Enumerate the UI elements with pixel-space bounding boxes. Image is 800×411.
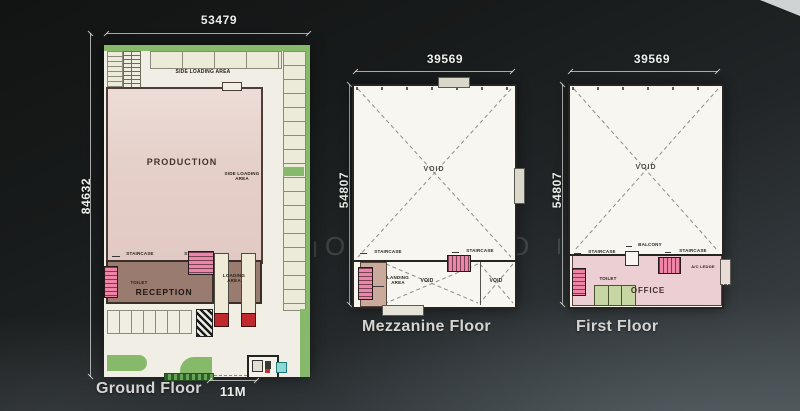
staircase-left-label: STAIRCASE	[118, 251, 162, 256]
parking-row-bottom	[107, 310, 192, 334]
staircase-left-label: STAIRCASE	[580, 249, 624, 254]
side-loading-area-right-label: SIDE LOADING AREA	[224, 171, 260, 182]
office-label: OFFICE	[626, 286, 670, 296]
mezz-width-dim-text: 39569	[395, 52, 495, 66]
first-floor-title: First Floor	[576, 318, 658, 336]
staircase-left-block	[572, 268, 586, 296]
staircase-left-label: STAIRCASE	[366, 249, 410, 254]
leader-line	[372, 286, 384, 287]
staircase-right-block	[188, 251, 214, 275]
first-height-dim-text: 54807	[551, 160, 563, 220]
staircase-right-label: STAIRCASE	[671, 248, 715, 253]
parking-column-left	[107, 51, 123, 91]
gate-dim-text: 11M	[209, 384, 257, 399]
landscape-strip-bottom-left	[107, 355, 147, 371]
guard-house-mark	[265, 361, 271, 369]
ground-width-dim-line	[106, 33, 309, 34]
right-tab	[514, 168, 525, 204]
leader-line	[112, 256, 120, 257]
mezzanine-floor-title: Mezzanine Floor	[362, 318, 491, 336]
production-label: PRODUCTION	[142, 157, 222, 168]
ground-floor-plan: SIDE LOADING AREA PRODUCTION SIDE LOADIN…	[104, 45, 310, 377]
leader-line	[360, 253, 367, 254]
pedestrian-crossing	[196, 309, 213, 337]
toilet-label: TOILET	[594, 276, 622, 281]
mezz-height-dim-text: 54807	[338, 160, 350, 220]
watermark-letter: O	[325, 231, 346, 262]
mezzanine-floor-plan: VOID LANDING AREA VOID VOID STAIRCASE ST…	[352, 84, 517, 309]
first-width-dim-text: 39569	[602, 52, 702, 66]
guard-house-room	[252, 360, 263, 372]
guard-house	[247, 355, 279, 379]
staircase-right-block	[658, 257, 681, 274]
landscape-gap-right	[283, 167, 304, 176]
side-loading-area-top-label: SIDE LOADING AREA	[174, 69, 232, 75]
watermark-letter: I	[312, 237, 319, 263]
first-floor-plan: VOID TOILET OFFICE STAIRCASE BALCONY STA…	[568, 84, 724, 309]
landing-area-label: LANDING AREA	[384, 275, 412, 286]
balcony-tab	[625, 251, 639, 266]
ground-height-dim-text: 84632	[80, 166, 92, 226]
external-staircase-block	[123, 51, 141, 91]
balcony-label: BALCONY	[632, 242, 668, 247]
reception-label: RECEPTION	[132, 287, 196, 297]
toilet-label: TOILET	[126, 280, 152, 285]
parking-row-top	[150, 51, 282, 69]
ac-ledge-label: A/C LEDGE	[684, 265, 722, 270]
staircase-right-label: STAIRCASE	[458, 248, 502, 253]
landscape-strip-bottom-right	[300, 309, 310, 377]
staircase-left-block	[358, 267, 373, 300]
void-main-label: VOID	[626, 164, 666, 172]
truck-icon	[214, 313, 229, 327]
ac-ledge-tab	[720, 259, 731, 285]
void-center-label: VOID	[412, 278, 442, 284]
page-corner-highlight	[760, 0, 800, 16]
gate-dim-line	[209, 380, 257, 381]
parking-column-right	[283, 51, 306, 311]
ground-width-dim-text: 53479	[169, 13, 269, 27]
barrier-mark	[265, 369, 270, 373]
photo-background: I O E O O I 53479 84632 SIDE LOADING ARE…	[0, 0, 800, 411]
production-door-canopy	[222, 82, 242, 91]
void-main-label: VOID	[412, 166, 456, 174]
leader-line	[574, 253, 581, 254]
gate-post	[276, 362, 287, 373]
loading-area-label: LOADING AREA	[216, 273, 252, 284]
leader-line	[626, 246, 632, 247]
first-width-dim-line	[570, 71, 718, 72]
truck-icon	[241, 313, 256, 327]
void-right-label: VOID	[481, 278, 511, 284]
ground-floor-title: Ground Floor	[96, 380, 202, 398]
leader-line	[665, 252, 671, 253]
staircase-right-block	[447, 255, 471, 272]
staircase-left-block	[104, 266, 118, 298]
bottom-tab	[382, 305, 424, 316]
top-tab	[438, 77, 470, 88]
leader-line	[452, 252, 459, 253]
mezz-width-dim-line	[355, 71, 513, 72]
